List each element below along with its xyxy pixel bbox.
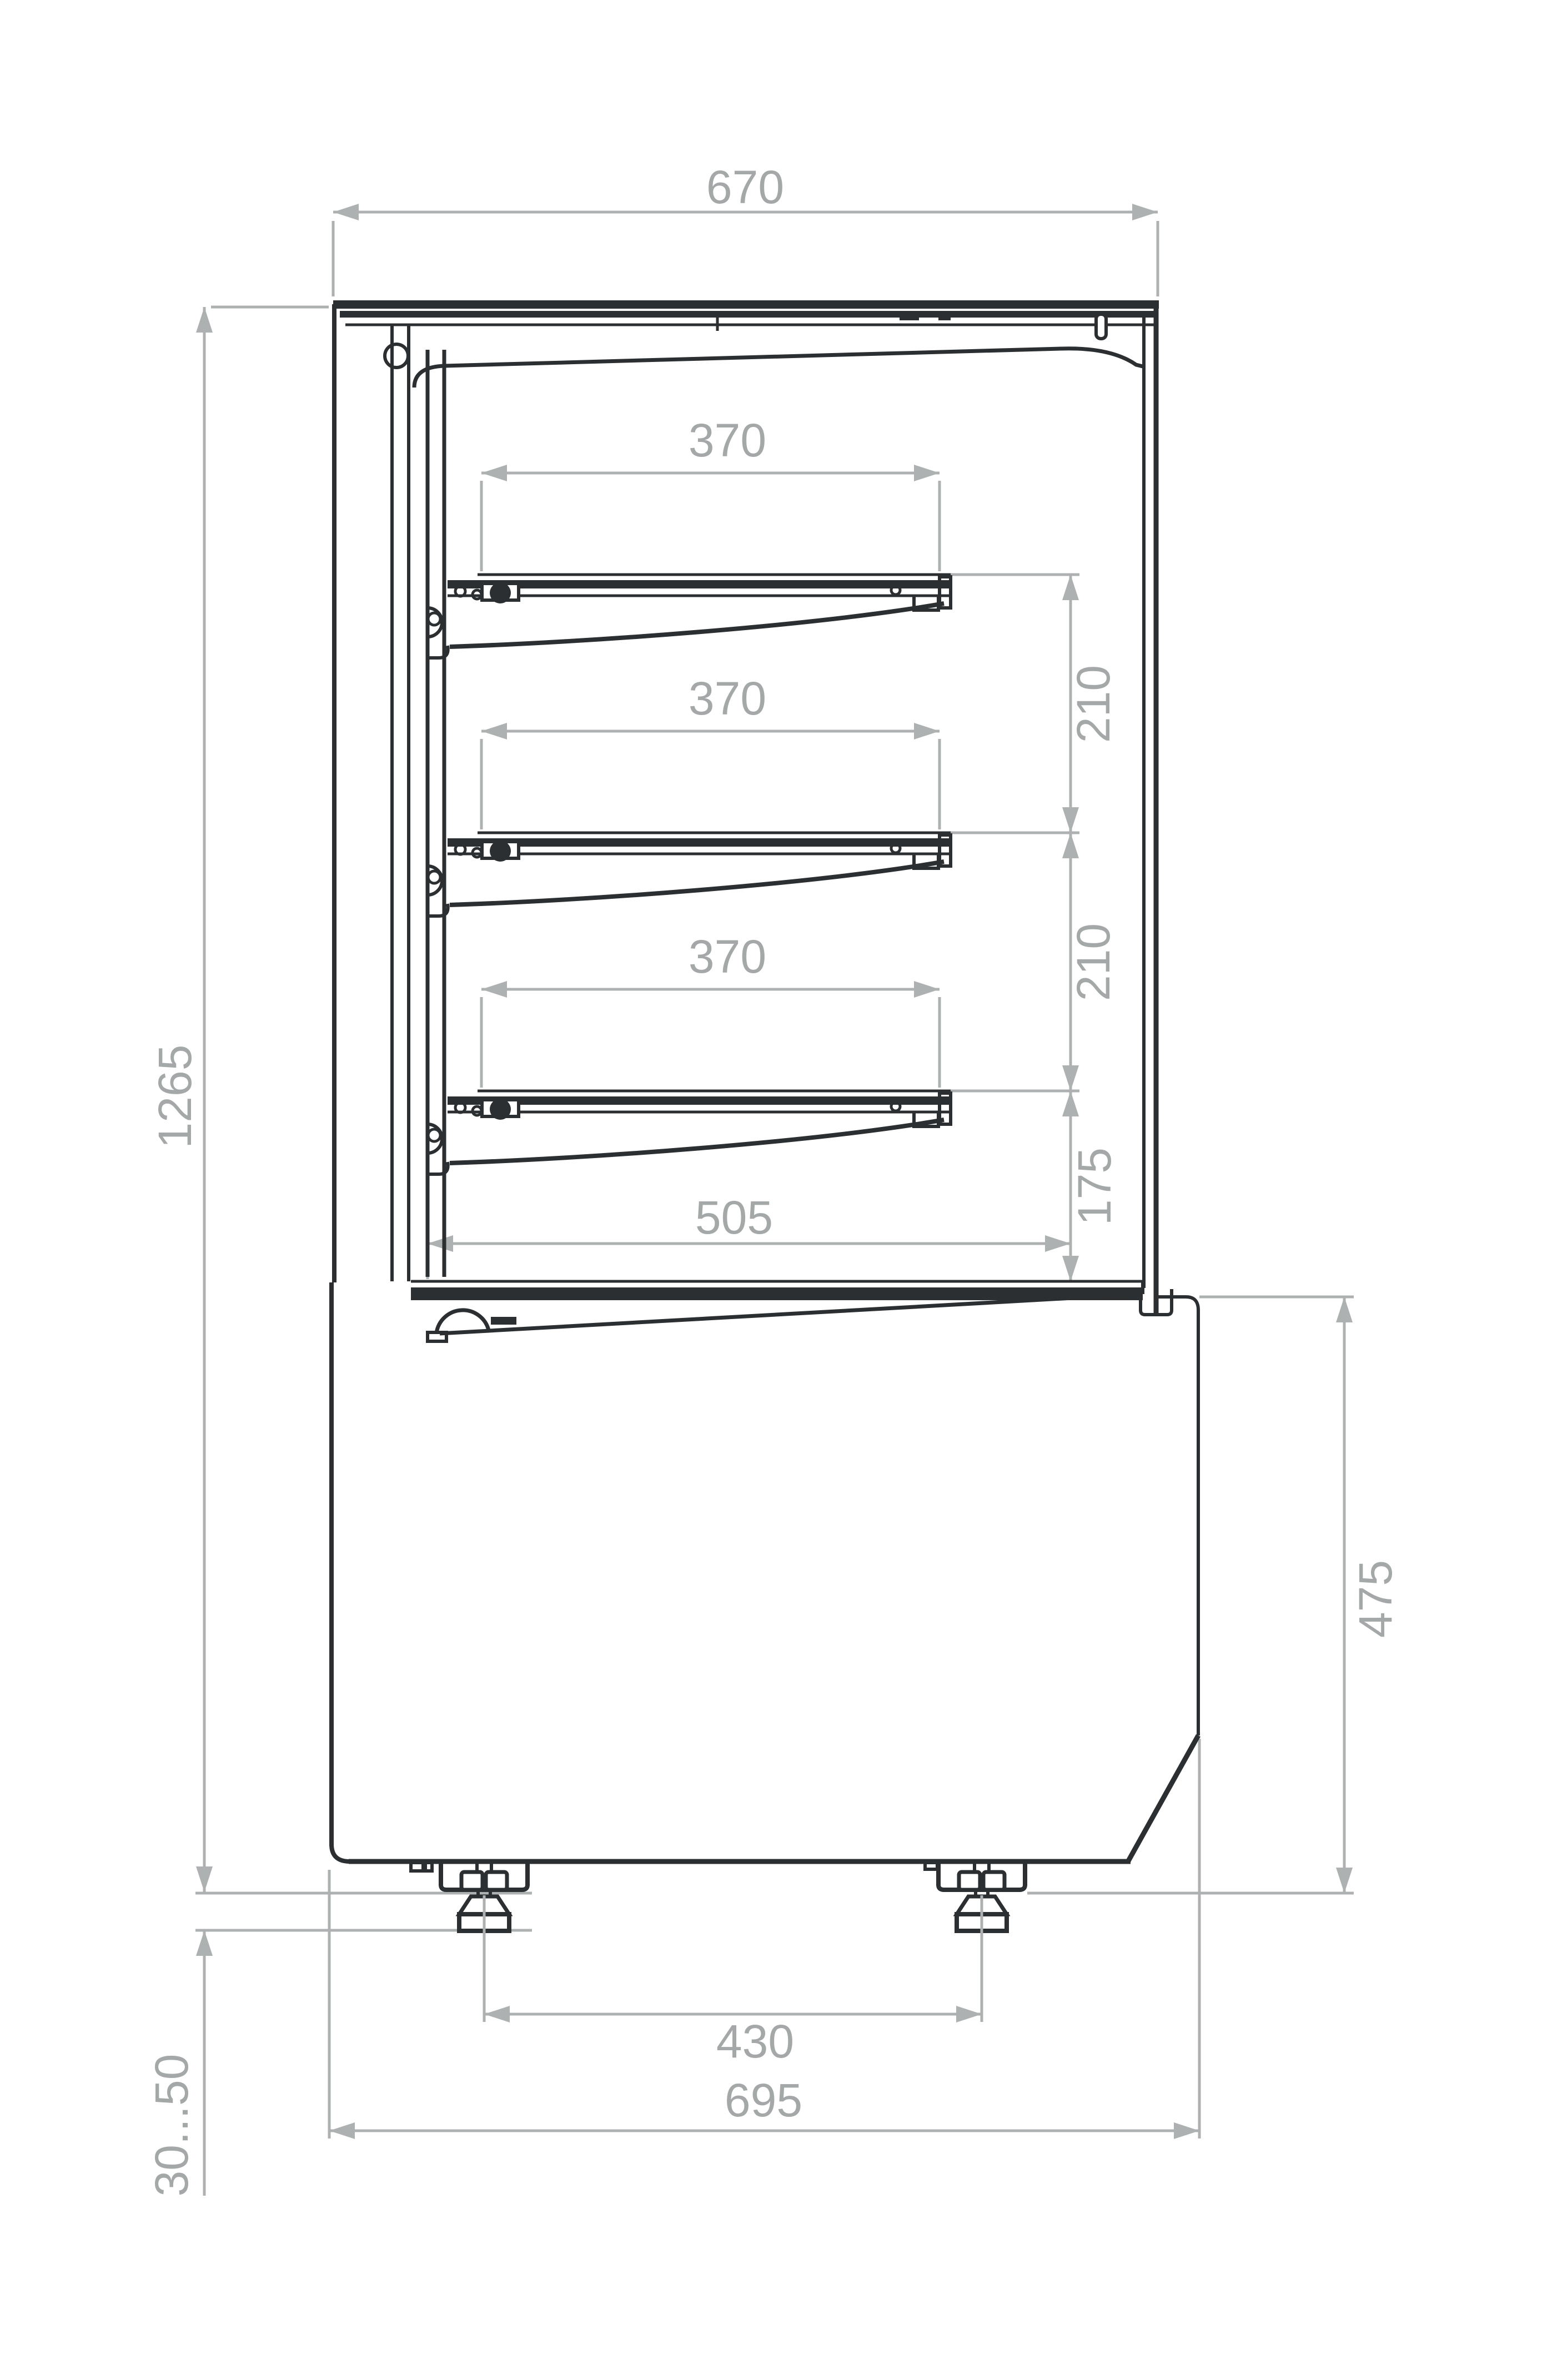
dim-label-gap3: 175 [1068,1148,1121,1225]
dim-label-gap1: 210 [1067,665,1119,743]
dim-shelf2-width: 370 [481,672,940,829]
foot-right [925,1863,1025,1931]
lamp-bracket [1096,314,1106,339]
front-glass [1141,301,1172,1315]
dim-label-base-height: 475 [1349,1560,1402,1638]
wall-screw-hole [385,344,408,368]
top-panel [333,300,1159,339]
shelf-1 [428,575,951,658]
base-cabinet [331,1282,1198,1861]
foot-left [411,1863,528,1931]
dim-label-feet-spacing: 430 [716,2015,794,2067]
deck [411,1281,1143,1341]
shelf-2 [428,833,951,916]
dim-base-height: 475 [1027,1297,1402,1893]
dim-shelf-gaps: 210 210 175 [951,575,1121,1281]
dim-label-deck-depth: 505 [695,1191,773,1244]
dim-label-shelf2-width: 370 [689,672,766,724]
dim-label-foot-adjustment: 30...50 [145,2054,198,2197]
dim-base-depth: 695 [329,1739,1199,2139]
dim-shelf1-width: 370 [481,414,940,571]
dim-shelf3-width: 370 [481,930,940,1088]
dim-top-width: 670 [333,161,1158,296]
inner-ceiling [414,349,1143,388]
dim-label-shelf1-width: 370 [689,414,766,466]
dim-label-gap2: 210 [1067,923,1119,1001]
display-case-side-view-drawing: 670 1265 370 370 [0,0,1542,2380]
shelf-bracket-arm [450,862,944,905]
feet-centerlines [484,1895,982,2022]
dim-foot-adjustment: 30...50 [145,1893,532,2196]
shelf-bracket-arm [450,603,944,647]
dim-overall-height: 1265 [149,307,329,1892]
shelf-bracket-arm [450,1120,944,1163]
dim-label-top-width: 670 [706,161,784,213]
shelf-3 [428,1091,951,1174]
dim-label-base-depth: 695 [725,2074,802,2126]
dim-deck-depth: 505 [428,1191,1071,1279]
dim-label-overall-height: 1265 [149,1045,201,1149]
dim-feet-spacing: 430 [484,2006,982,2067]
dim-label-shelf3-width: 370 [689,930,766,983]
